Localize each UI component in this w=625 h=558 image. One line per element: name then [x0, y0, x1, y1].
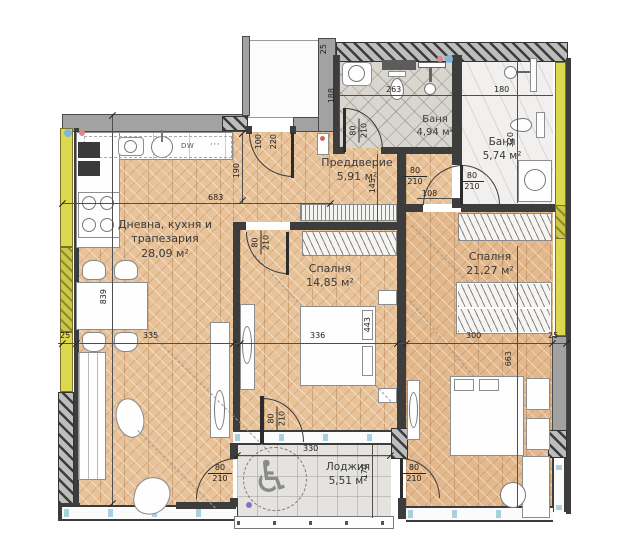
dimension-label: 839 [100, 289, 108, 304]
dimension-label: 188 [328, 88, 336, 103]
wall-left-hatch-bottom [58, 392, 74, 505]
wall-right-hatch [548, 430, 567, 458]
freezer-icon [78, 161, 100, 176]
bedroom1-wardrobe [302, 231, 397, 256]
room-area: 14,85 м² [285, 276, 375, 290]
bedroom2-pillow-1 [454, 379, 474, 391]
room-name: Спалня [445, 250, 535, 264]
wheelchair-icon: ♿ [252, 456, 291, 500]
room-label-bath1: Баня 4,94 м² [400, 113, 470, 139]
room-label-hall: Преддверие 5,91 м² [303, 156, 411, 185]
tv-bedroom2 [409, 392, 418, 428]
bath1-shower-bar [418, 62, 446, 68]
dimension-label: 300 [466, 332, 481, 340]
door-size-label: 80210 [251, 231, 272, 255]
floor-plan: DW ··· [0, 0, 625, 558]
room-label-living: Дневна, кухня и трапезария 28,09 м² [85, 218, 245, 261]
tv-bedroom1 [242, 326, 252, 364]
bath1-shower-stem [429, 67, 432, 82]
dimension-label: 663 [505, 351, 513, 366]
wall-left-insulation-hatch [60, 247, 73, 332]
room-name-2: трапезария [85, 232, 245, 246]
dim-line [417, 198, 460, 199]
loggia-dot [246, 502, 252, 508]
dim-line [112, 115, 113, 505]
dimension-label: 335 [143, 332, 158, 340]
sofa [78, 352, 106, 480]
bath2-toilet-tank [536, 112, 545, 138]
dimension-label: 263 [386, 86, 401, 94]
bedroom1-nightstand-1 [378, 290, 397, 305]
bath1-hot-dot [437, 56, 443, 62]
dim-line [340, 95, 453, 96]
wall-bedroom1-top-b [290, 222, 397, 230]
bath2-toilet [510, 118, 532, 132]
bedroom1-pillow-2 [362, 346, 373, 376]
dimension-label: 25 [548, 332, 558, 340]
bath1-toilet-tank [388, 71, 406, 77]
room-name: Спалня [285, 262, 375, 276]
bedroom2-wardrobe-row2 [458, 309, 550, 332]
dim-line [237, 455, 393, 456]
wall-entry-post [293, 117, 320, 132]
chair-3 [82, 332, 106, 352]
room-area: 5,74 м² [462, 150, 542, 164]
wall-top-kitchen [62, 114, 248, 132]
bath1-washer [382, 60, 416, 70]
dim-line [62, 203, 333, 204]
water-connection-hot [79, 130, 85, 136]
dimension-label: 330 [303, 445, 318, 453]
entrance-niche [248, 40, 320, 118]
wall-right-insulation-hatch [555, 205, 566, 239]
bedroom1-loggia-door-leaf [260, 396, 264, 444]
wall-loggia-pier [391, 428, 408, 459]
bedroom2-nightstand-2 [526, 418, 550, 450]
dimension-label: 100 [255, 134, 263, 149]
chair-2 [114, 260, 138, 280]
wall-bath-divider [452, 55, 462, 165]
wall-bath1-bottom-b [381, 147, 457, 154]
room-label-bath2: Баня 5,74 м² [462, 136, 542, 163]
wall-loggia-right-b [398, 498, 406, 519]
dimension-label: 683 [208, 194, 223, 202]
sill-living-dark [176, 502, 236, 509]
dim-line [339, 58, 340, 146]
room-name: Лоджия [315, 461, 381, 475]
wall-niche-left [242, 36, 250, 116]
bedroom2-desk [522, 456, 550, 518]
loggia-railing [234, 516, 394, 529]
kitchen-upper-cabinets-dashed [84, 136, 232, 158]
room-label-bedroom1: Спалня 14,85 м² [285, 262, 375, 291]
bath2-shower-arm [516, 71, 530, 73]
bedroom2-wardrobe-top [458, 213, 552, 241]
door-size-label: 80210 [460, 171, 484, 192]
wall-left-insulation-top [60, 128, 73, 247]
bedroom2-nightstand-1 [526, 378, 550, 410]
door-size-label: 80210 [267, 407, 288, 431]
bath1-sink-bowl [348, 65, 365, 82]
room-area: 21,27 м² [445, 264, 535, 278]
window-right-bedroom2 [552, 458, 566, 512]
door-size-label: 80210 [349, 119, 370, 143]
door-size-label: 80210 [402, 463, 426, 484]
dimension-label: 220 [270, 134, 278, 149]
bedroom2-chair [500, 482, 526, 508]
chair-4 [114, 332, 138, 352]
bedroom2-wardrobe-row1 [458, 284, 550, 307]
fridge-icon [78, 142, 100, 158]
bath1-cold-dot [445, 55, 453, 63]
plan-area: DW ··· [0, 0, 625, 558]
dim-line [462, 95, 553, 96]
entrance-door-leaf [291, 133, 294, 178]
plant-living [214, 390, 225, 430]
water-connection-cold [64, 129, 72, 137]
room-area: 28,09 м² [85, 247, 245, 261]
bedroom2-pillow-2 [479, 379, 499, 391]
dim-line [517, 58, 518, 203]
wall-right-insulation [555, 62, 566, 336]
wall-bedrooms-divider [397, 147, 406, 446]
room-label-loggia: Лоджия 5,51 м² [315, 461, 381, 488]
bath2-sink-bowl [524, 169, 546, 191]
hall-closet [300, 204, 397, 221]
wall-bedroom2-top-b [461, 204, 555, 212]
room-name: Баня [462, 136, 542, 150]
dimension-label: 108 [422, 190, 437, 198]
dimension-label: 443 [364, 317, 372, 332]
kitchen-hob-handle [161, 130, 163, 142]
room-name: Дневна, кухня и [85, 218, 245, 232]
door-size-label: 80210 [208, 463, 232, 484]
dimension-label: 180 [494, 86, 509, 94]
chair-1 [82, 260, 106, 280]
dimension-label: 25 [320, 44, 328, 54]
window-bedroom1-loggia [233, 430, 397, 445]
room-name: Баня [400, 113, 470, 126]
room-area: 5,91 м² [303, 170, 411, 184]
dim-line [517, 246, 518, 508]
bath2-shower-bracket [530, 58, 537, 92]
room-area: 5,51 м² [315, 475, 381, 489]
room-label-bedroom2: Спалня 21,27 м² [445, 250, 535, 279]
dim-line [58, 343, 568, 344]
room-name: Преддверие [303, 156, 411, 170]
wall-left-insulation-low [60, 332, 73, 392]
wall-right-gray [552, 336, 567, 431]
bath1-shower-valve [424, 83, 436, 95]
bath1-door-leaf [343, 108, 346, 152]
dimension-label: 190 [233, 163, 241, 178]
dimension-label: 336 [310, 332, 325, 340]
dimension-label: 25 [60, 332, 70, 340]
room-area: 4,94 м² [400, 126, 470, 139]
wall-hatch-entry [222, 116, 248, 131]
panel-dot [320, 136, 325, 141]
dim-line [242, 133, 243, 203]
